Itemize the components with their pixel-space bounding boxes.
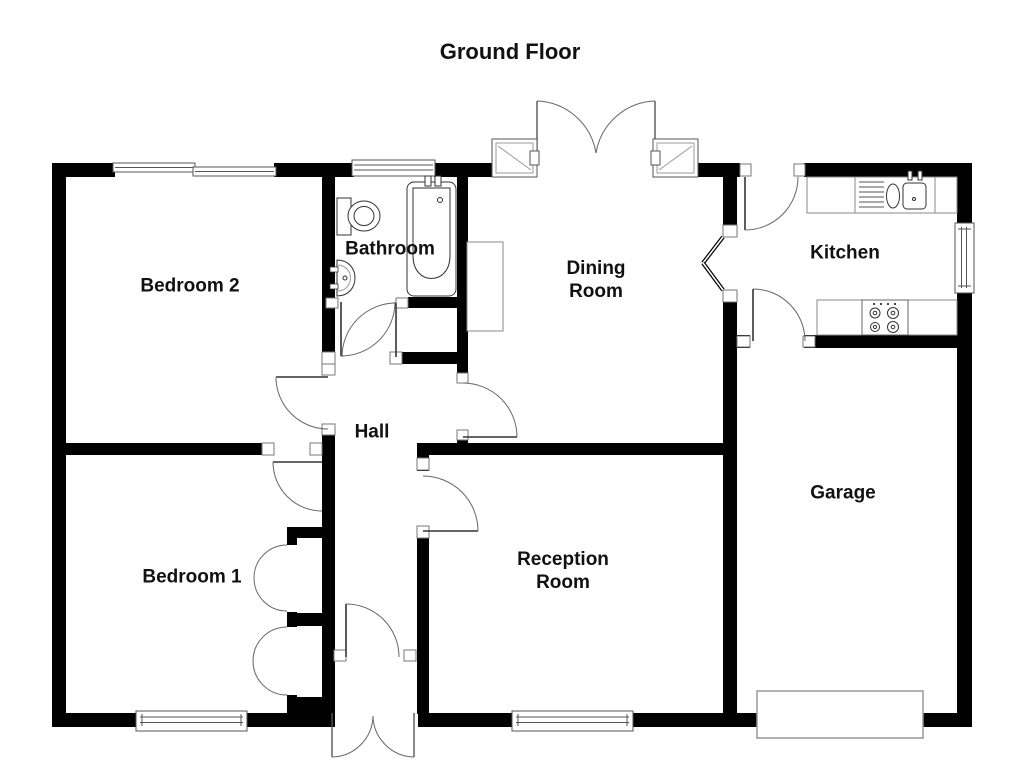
wall-cupboard-mid — [287, 613, 335, 626]
garage-kitchen-door — [753, 289, 805, 341]
bathtub-fixture — [407, 176, 456, 296]
wall-outer-bottom — [246, 713, 330, 727]
front-entrance-doors — [332, 713, 414, 757]
wall-outer-bottom — [52, 713, 137, 727]
cupboard-doors-upper — [254, 545, 287, 611]
wall-outer-top — [52, 163, 115, 177]
reception-window — [512, 711, 633, 731]
wall-outer-top — [274, 163, 354, 177]
wall-bathroom-dining — [457, 177, 468, 373]
sink-bowl-square — [903, 183, 926, 209]
page-title: Ground Floor — [440, 39, 581, 65]
toilet-fixture — [337, 198, 380, 235]
room-label-garage: Garage — [810, 483, 875, 506]
floor-plan-drawing — [0, 0, 1024, 768]
corner-window-left — [492, 139, 539, 177]
room-label-bedroom2: Bedroom 2 — [140, 276, 239, 299]
garage-door — [757, 691, 923, 738]
room-label-bedroom1: Bedroom 1 — [142, 567, 241, 590]
dining-kitchen-folding-doors — [703, 237, 723, 290]
reception-door — [423, 476, 478, 531]
wall-outer-right — [957, 292, 972, 727]
inner-front-door — [346, 604, 399, 657]
chimney-breast — [467, 242, 503, 331]
kitchen-sink-worktop — [807, 171, 957, 213]
kitchen-window — [955, 223, 974, 293]
corner-window-right — [651, 139, 698, 177]
tap-icon — [918, 171, 922, 180]
wall-outer-left — [52, 163, 66, 727]
floor-plan: Ground Floor Bedroom 2 Bathroom Dining R… — [0, 0, 1024, 768]
dining-room-door — [463, 383, 517, 437]
wall-bedroom-divider — [66, 443, 274, 455]
wall-hall-left — [322, 425, 335, 727]
bedroom2-door — [276, 377, 328, 429]
wall-outer-right — [957, 163, 972, 225]
wall-garage-top — [804, 335, 957, 348]
sink-bowl-round — [887, 184, 900, 208]
room-label-dining-room: Dining Room — [551, 258, 641, 304]
wall-cupboard-bottom — [287, 697, 335, 714]
wall-outer-bottom — [418, 713, 514, 727]
french-doors — [537, 101, 655, 163]
bedroom1-window — [136, 711, 247, 731]
wall-outer-top — [434, 163, 492, 177]
bedroom2-window — [113, 163, 276, 176]
bedroom1-door — [273, 462, 322, 511]
room-label-hall: Hall — [355, 422, 390, 445]
cupboard-doors-lower — [253, 627, 287, 695]
bathroom-window — [352, 160, 435, 176]
kitchen-back-door — [745, 177, 798, 230]
room-label-reception-room: Reception Room — [503, 549, 623, 595]
tap-icon — [908, 171, 912, 180]
wall-bathroom-bottom — [408, 297, 468, 308]
wall-outer-top — [804, 163, 957, 177]
wall-reception-left — [417, 526, 429, 714]
wall-hall-top — [402, 352, 468, 364]
kitchen-hob-worktop — [817, 300, 957, 335]
wall-garage-left — [723, 290, 737, 727]
wall-reception-top — [417, 443, 737, 455]
room-label-bathroom: Bathroom — [345, 239, 435, 262]
wall-cupboard-top — [287, 527, 335, 538]
room-label-kitchen: Kitchen — [810, 243, 880, 266]
